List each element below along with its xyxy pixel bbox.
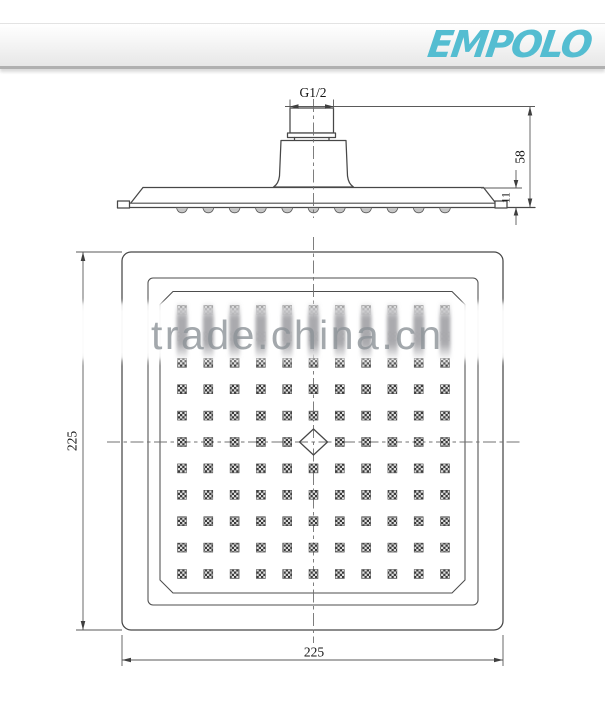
watermark-wash: [77, 303, 89, 359]
nozzle: [335, 411, 344, 420]
nozzle: [178, 490, 187, 499]
nozzle: [256, 464, 265, 473]
nozzle: [388, 543, 397, 552]
nozzle: [178, 570, 187, 579]
page: EMPOLO: [0, 0, 605, 704]
nozzle: [178, 411, 187, 420]
nozzle-bump: [203, 208, 214, 213]
nozzle: [441, 517, 450, 526]
nozzle: [283, 464, 292, 473]
thread-dimension: G1/2: [285, 85, 535, 109]
thickness-dim-label: 11: [501, 192, 513, 203]
nozzle: [335, 438, 344, 447]
watermark-wash: [472, 303, 484, 359]
nozzle: [362, 570, 371, 579]
nozzle: [230, 438, 239, 447]
nozzle: [335, 517, 344, 526]
nozzle: [414, 490, 423, 499]
side-view: G1/2 58 11: [118, 85, 536, 225]
nozzle: [309, 490, 318, 499]
nozzle: [256, 385, 265, 394]
nozzle: [283, 517, 292, 526]
nozzle: [441, 385, 450, 394]
nozzle: [362, 438, 371, 447]
nozzle: [335, 543, 344, 552]
nozzle: [256, 438, 265, 447]
nozzle: [309, 543, 318, 552]
watermark-wash: [116, 303, 128, 359]
nozzle: [388, 464, 397, 473]
nozzle: [441, 543, 450, 552]
nozzle: [256, 411, 265, 420]
nozzle: [230, 411, 239, 420]
nozzle: [204, 543, 213, 552]
nozzle: [178, 517, 187, 526]
nozzle: [204, 490, 213, 499]
nozzle: [414, 464, 423, 473]
nozzle: [362, 464, 371, 473]
nozzle-bump: [413, 208, 424, 213]
technical-drawing: G1/2 58 11: [0, 0, 605, 704]
nozzle: [230, 517, 239, 526]
nozzle: [204, 570, 213, 579]
nozzle: [204, 411, 213, 420]
nozzle: [414, 385, 423, 394]
nozzle: [256, 543, 265, 552]
plate-left-cap: [118, 201, 130, 208]
nozzle: [230, 464, 239, 473]
nozzle: [283, 570, 292, 579]
nozzle: [256, 570, 265, 579]
nozzle: [230, 570, 239, 579]
watermark: trade.china.cn: [55, 298, 550, 366]
thread-size-label: G1/2: [300, 85, 327, 100]
nozzle: [388, 570, 397, 579]
nozzle: [283, 490, 292, 499]
nozzle: [441, 411, 450, 420]
width-dim-label: 225: [304, 645, 325, 660]
nozzle: [256, 490, 265, 499]
nozzle: [283, 438, 292, 447]
watermark-wash: [459, 303, 471, 359]
nozzle: [178, 543, 187, 552]
nozzle-bump: [440, 208, 451, 213]
nozzle-bump: [334, 208, 345, 213]
height-dim-label: 58: [513, 150, 528, 164]
thickness-dimension: 11: [481, 170, 522, 225]
nozzle: [362, 517, 371, 526]
nozzle: [414, 411, 423, 420]
nozzle: [335, 490, 344, 499]
nozzle-bump: [361, 208, 372, 213]
nozzle: [441, 570, 450, 579]
nozzle-bump: [387, 208, 398, 213]
nozzle-bump: [282, 208, 293, 213]
nozzle: [178, 438, 187, 447]
nozzle: [362, 490, 371, 499]
nozzle: [335, 385, 344, 394]
nozzle: [283, 411, 292, 420]
nozzle: [335, 570, 344, 579]
nozzle: [204, 385, 213, 394]
nozzle: [414, 517, 423, 526]
nozzle: [230, 490, 239, 499]
nozzle: [230, 385, 239, 394]
nozzle: [362, 411, 371, 420]
nozzle: [283, 385, 292, 394]
watermark-text: trade.china.cn: [151, 312, 444, 358]
nozzle: [204, 517, 213, 526]
nozzle: [204, 438, 213, 447]
nozzle: [230, 543, 239, 552]
nozzle: [309, 385, 318, 394]
nozzle: [178, 385, 187, 394]
watermark-wash: [497, 303, 509, 359]
nozzle: [362, 543, 371, 552]
nozzle: [414, 438, 423, 447]
nozzle: [388, 490, 397, 499]
nozzle: [388, 517, 397, 526]
nozzle: [178, 464, 187, 473]
nozzle: [441, 490, 450, 499]
nozzle: [283, 543, 292, 552]
nozzle: [441, 438, 450, 447]
nozzle: [362, 385, 371, 394]
nozzle: [414, 570, 423, 579]
thread-cylinder: [290, 108, 334, 133]
nozzle-bump: [255, 208, 266, 213]
nozzle: [309, 464, 318, 473]
nozzle: [414, 543, 423, 552]
nozzle: [256, 517, 265, 526]
width-dimension-bottom: 225: [122, 635, 503, 666]
nozzle: [204, 464, 213, 473]
nozzle: [309, 517, 318, 526]
nozzle: [441, 464, 450, 473]
nozzle: [309, 411, 318, 420]
nozzle: [388, 438, 397, 447]
height-dim-label-left: 225: [65, 431, 80, 452]
nozzle: [309, 570, 318, 579]
thread-flange: [288, 133, 336, 138]
nozzle: [388, 385, 397, 394]
nozzle-bump: [229, 208, 240, 213]
nozzle: [335, 464, 344, 473]
nozzle-bump: [177, 208, 188, 213]
nozzle: [388, 411, 397, 420]
height-dimension: 58: [513, 107, 533, 208]
